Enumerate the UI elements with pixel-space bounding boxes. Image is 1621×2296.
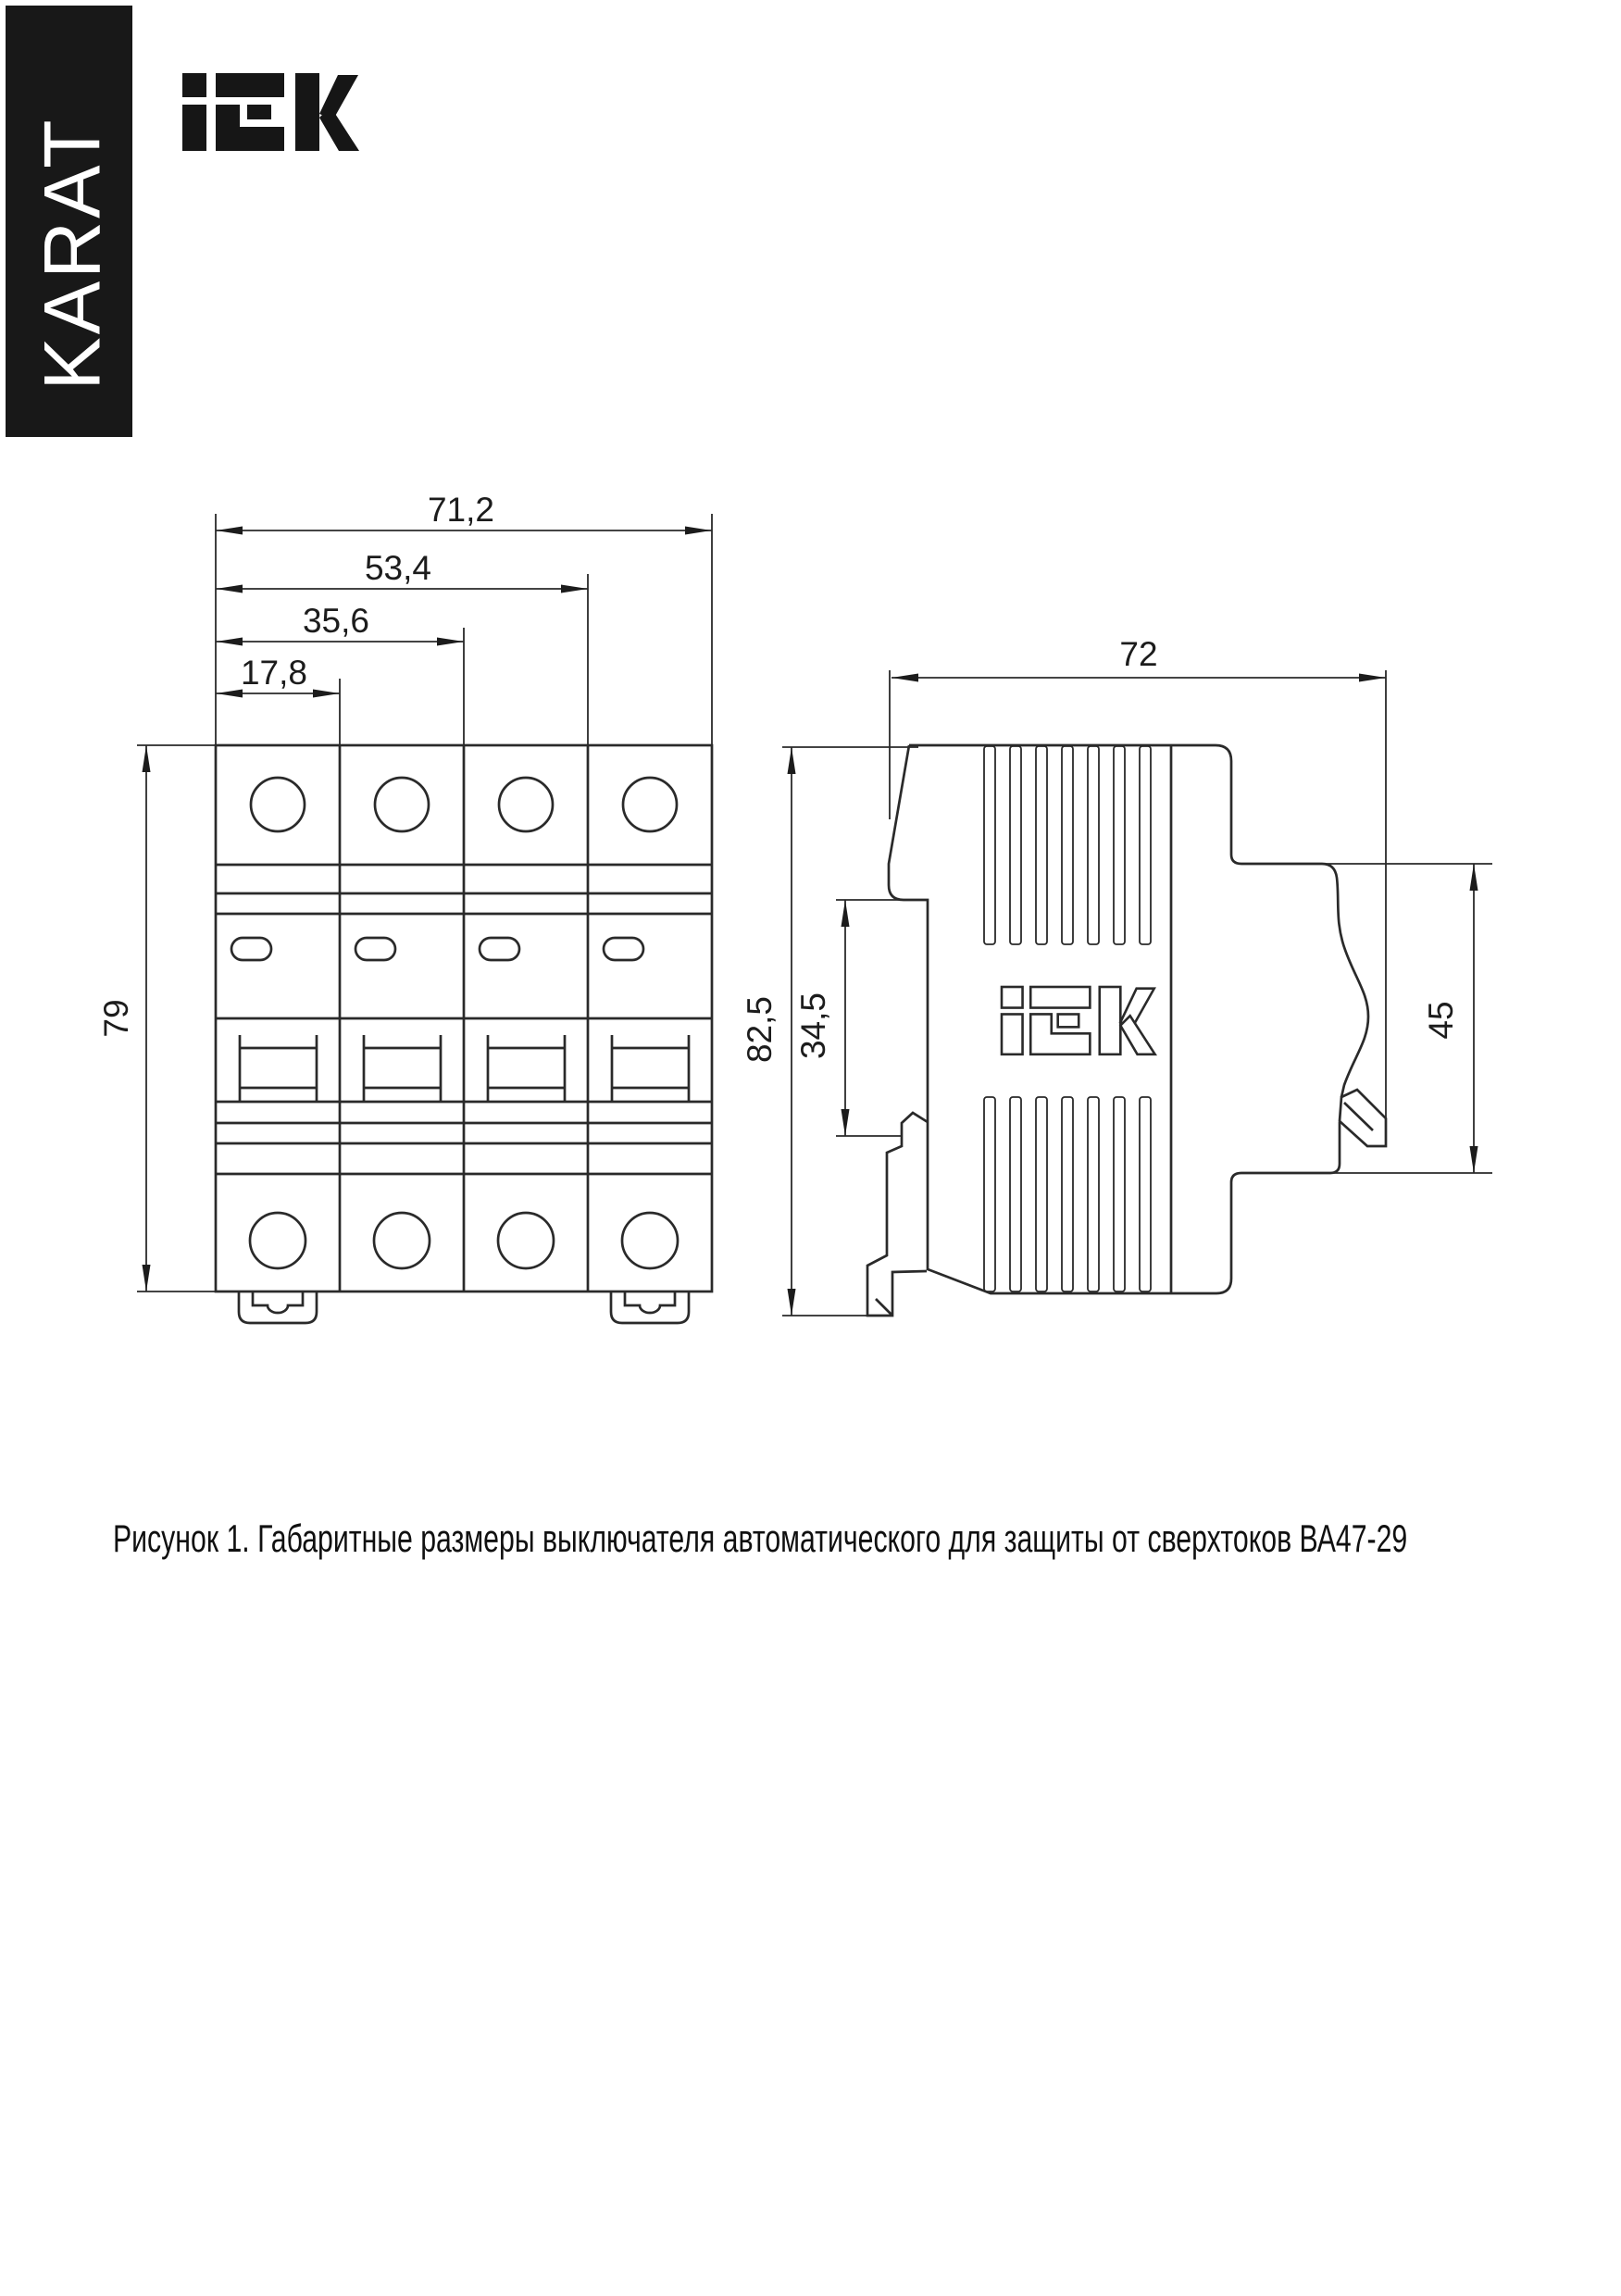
datasheet-page: KARAT <box>0 0 1621 2296</box>
front-view: 71,2 53,4 35,6 17,8 79 <box>97 491 712 1323</box>
dim-width-three-modules: 53,4 <box>365 549 431 587</box>
din-latch-tabs <box>239 1291 689 1323</box>
dim-height-total: 82,5 <box>741 996 779 1063</box>
dim-depth: 72 <box>1119 635 1157 673</box>
dim-din-rail-section: 34,5 <box>794 992 832 1059</box>
dim-width-one-module: 17,8 <box>241 654 307 692</box>
side-view-dimensions: 72 82,5 34,5 45 <box>741 635 1492 1316</box>
figure-caption: Рисунок 1. Габаритные размеры выключател… <box>113 1516 1407 1561</box>
vent-slits-top <box>984 746 1151 944</box>
iek-embossed-logo <box>1002 987 1155 1054</box>
vent-slits-bottom <box>984 1097 1151 1291</box>
side-view: 72 82,5 34,5 45 <box>741 635 1492 1316</box>
iek-logo <box>182 73 359 151</box>
front-view-dimensions: 71,2 53,4 35,6 17,8 79 <box>97 491 712 1291</box>
side-din-clip <box>867 1113 928 1316</box>
dim-front-part-height: 45 <box>1422 1001 1460 1039</box>
dim-width-two-modules: 35,6 <box>303 602 369 640</box>
dimension-drawing: 71,2 53,4 35,6 17,8 79 <box>0 0 1621 2296</box>
dim-width-total: 71,2 <box>428 491 494 529</box>
label-slots <box>231 938 643 960</box>
side-toggle-lever <box>1340 1090 1386 1146</box>
dim-front-height: 79 <box>97 999 135 1037</box>
